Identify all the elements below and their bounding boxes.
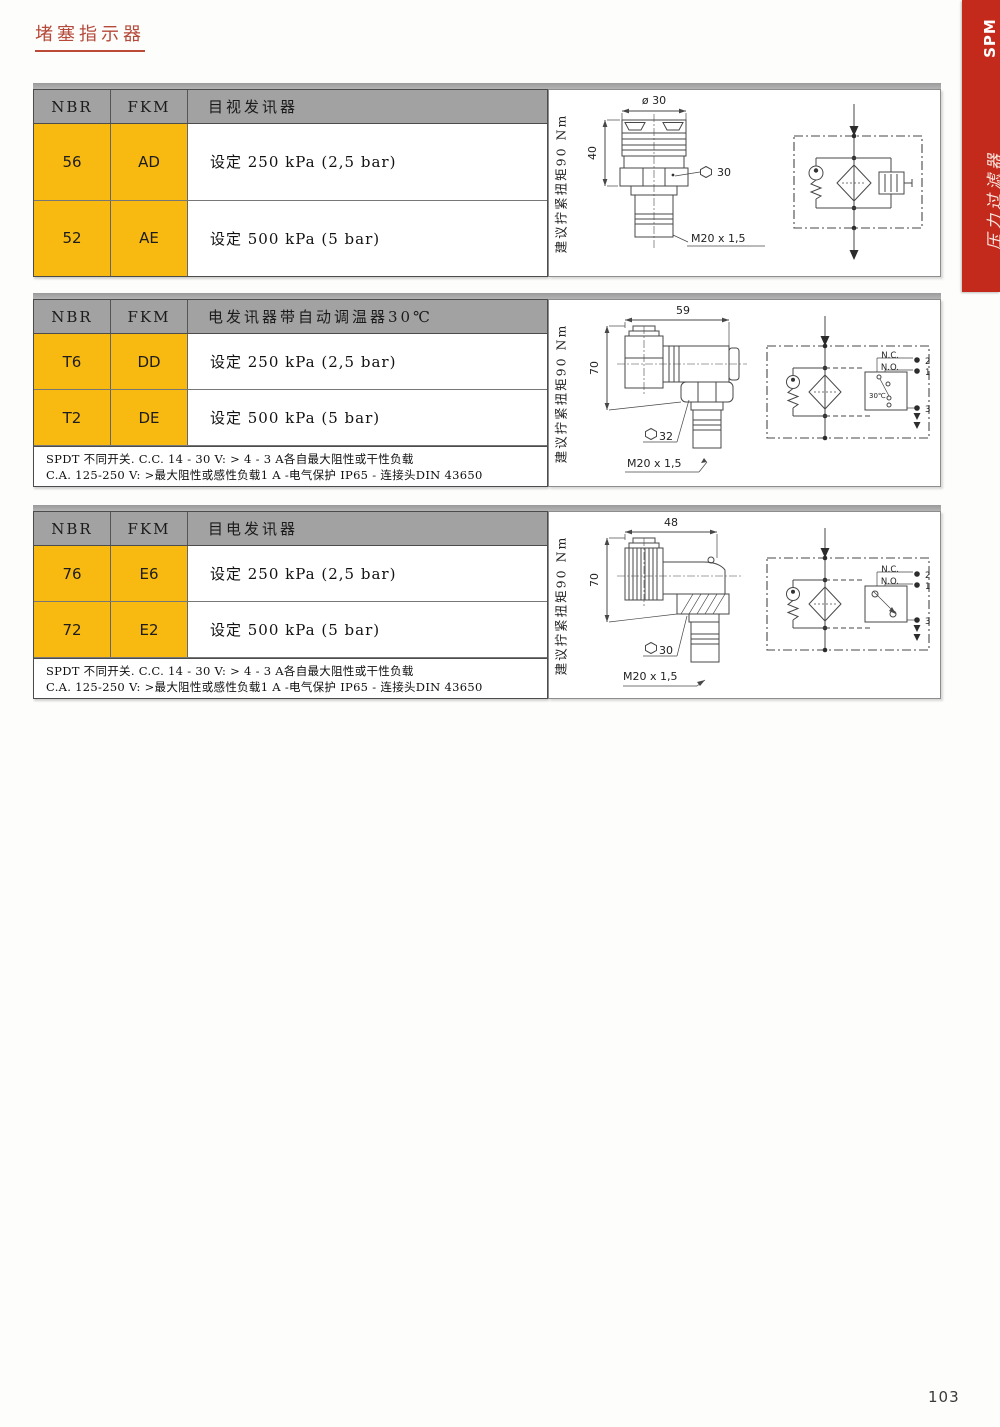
device-outline-drawing	[605, 318, 747, 472]
nc-label: N.C.	[881, 565, 899, 575]
thread-label: M20 x 1,5	[623, 670, 677, 683]
cell-fkm-value: E6	[111, 546, 188, 601]
section-visual-electrical-indicator: NBR FKM 目电发讯器 76 E6 设定 250 kPa (2,5 bar)…	[33, 505, 941, 699]
table-row: T2 DE 设定 500 kPa (5 bar)	[34, 390, 547, 446]
table-row: 72 E2 设定 500 kPa (5 bar)	[34, 602, 547, 658]
cell-fkm-value: DE	[111, 390, 188, 445]
hydraulic-schematic	[767, 316, 929, 440]
cell-setting-desc: 设定 250 kPa (2,5 bar)	[188, 124, 547, 200]
header-cell-fkm: FKM	[111, 90, 188, 123]
footnote-line-2: C.A. 125-250 V: >最大阻性或感性负载1 A -电气保护 IP65…	[46, 467, 537, 483]
cell-nbr-value: T2	[34, 390, 111, 445]
table-row: 56 AD 设定 250 kPa (2,5 bar)	[34, 124, 547, 201]
hexagon-icon	[646, 429, 657, 440]
terminal-2-label: 2	[925, 571, 930, 581]
check-valve-icon	[809, 166, 823, 180]
no-label: N.O.	[881, 577, 899, 587]
device-outline-drawing	[603, 109, 765, 250]
check-valve-icon	[787, 376, 800, 389]
table-header-row: NBR FKM 目电发讯器	[34, 512, 547, 546]
electrical-indicator-drawing: 59 70 32 M20 x 1,5	[569, 300, 940, 486]
header-cell-title: 电发讯器带自动调温器30℃	[188, 300, 547, 333]
dim-diameter-label: ø 30	[642, 94, 666, 107]
header-cell-title: 目视发讯器	[188, 90, 547, 123]
terminal-2-label: 2	[925, 357, 930, 367]
cell-fkm-value: AD	[111, 124, 188, 200]
dim-height-label: 70	[588, 361, 601, 375]
header-cell-nbr: NBR	[34, 90, 111, 123]
drawing-panel: 建议拧紧扭矩90 Nm	[548, 511, 941, 699]
cell-nbr-value: 56	[34, 124, 111, 200]
page-title: 堵塞指示器	[35, 20, 145, 52]
torque-note: 建议拧紧扭矩90 Nm	[551, 323, 570, 463]
cell-setting-desc: 设定 250 kPa (2,5 bar)	[188, 546, 547, 601]
table-header-row: NBR FKM 电发讯器带自动调温器30℃	[34, 300, 547, 334]
terminal-1-label: 1	[925, 368, 930, 378]
hexagon-icon	[646, 643, 657, 654]
header-cell-nbr: NBR	[34, 512, 111, 545]
table-row: T6 DD 设定 250 kPa (2,5 bar)	[34, 334, 547, 390]
cell-setting-desc: 设定 250 kPa (2,5 bar)	[188, 334, 547, 389]
torque-note: 建议拧紧扭矩90 Nm	[551, 535, 570, 675]
header-cell-nbr: NBR	[34, 300, 111, 333]
nc-label: N.C.	[881, 351, 899, 361]
cell-setting-desc: 设定 500 kPa (5 bar)	[188, 201, 547, 277]
hydraulic-schematic	[794, 104, 922, 260]
cell-nbr-value: 52	[34, 201, 111, 277]
thermostat-label: 30℃	[869, 392, 886, 400]
header-cell-title: 目电发讯器	[188, 512, 547, 545]
table-footnote: SPDT 不同开关. C.C. 14 - 30 V: > 4 - 3 A各自最大…	[34, 446, 547, 486]
no-label: N.O.	[881, 363, 899, 373]
thread-label: M20 x 1,5	[691, 232, 745, 245]
cell-nbr-value: 72	[34, 602, 111, 657]
check-valve-icon	[787, 588, 800, 601]
table-row: 76 E6 设定 250 kPa (2,5 bar)	[34, 546, 547, 602]
cell-setting-desc: 设定 500 kPa (5 bar)	[188, 390, 547, 445]
table-header-row: NBR FKM 目视发讯器	[34, 90, 547, 124]
footnote-line-2: C.A. 125-250 V: >最大阻性或感性负载1 A -电气保护 IP65…	[46, 679, 537, 695]
cell-fkm-value: E2	[111, 602, 188, 657]
visual-indicator-drawing: ø 30 40 30 M20 x 1,5	[569, 90, 940, 276]
footnote-line-1: SPDT 不同开关. C.C. 14 - 30 V: > 4 - 3 A各自最大…	[46, 451, 537, 467]
terminal-3-label: 3	[925, 405, 930, 415]
hexagon-icon	[701, 167, 712, 178]
dim-height-label: 70	[588, 573, 601, 587]
drawing-panel: 建议拧紧扭矩90 Nm	[548, 89, 941, 277]
section-electrical-indicator: NBR FKM 电发讯器带自动调温器30℃ T6 DD 设定 250 kPa (…	[33, 293, 941, 487]
footnote-line-1: SPDT 不同开关. C.C. 14 - 30 V: > 4 - 3 A各自最大…	[46, 663, 537, 679]
page-number: 103	[928, 1388, 960, 1406]
drawing-panel: 建议拧紧扭矩90 Nm	[548, 299, 941, 487]
dim-width-label: 48	[664, 516, 678, 529]
hex-size-label: 30	[717, 166, 731, 179]
terminal-1-label: 1	[925, 582, 930, 592]
cell-fkm-value: DD	[111, 334, 188, 389]
visual-indicator-table: NBR FKM 目视发讯器 56 AD 设定 250 kPa (2,5 bar)…	[33, 89, 548, 277]
hydraulic-schematic	[767, 528, 929, 652]
thread-label: M20 x 1,5	[627, 457, 681, 470]
dim-width-label: 59	[676, 304, 690, 317]
terminal-3-label: 3	[925, 617, 930, 627]
header-cell-fkm: FKM	[111, 300, 188, 333]
visual-electrical-indicator-drawing: 48 70 30 M20 x 1,5	[569, 512, 940, 698]
cell-setting-desc: 设定 500 kPa (5 bar)	[188, 602, 547, 657]
electrical-indicator-table: NBR FKM 电发讯器带自动调温器30℃ T6 DD 设定 250 kPa (…	[33, 299, 548, 487]
cell-fkm-value: AE	[111, 201, 188, 277]
hex-size-label: 32	[659, 430, 673, 443]
device-outline-drawing	[605, 530, 743, 686]
section-visual-indicator: NBR FKM 目视发讯器 56 AD 设定 250 kPa (2,5 bar)…	[33, 83, 941, 277]
header-cell-fkm: FKM	[111, 512, 188, 545]
cell-nbr-value: 76	[34, 546, 111, 601]
dim-height-label: 40	[586, 146, 599, 160]
table-row: 52 AE 设定 500 kPa (5 bar)	[34, 201, 547, 277]
visual-electrical-indicator-table: NBR FKM 目电发讯器 76 E6 设定 250 kPa (2,5 bar)…	[33, 511, 548, 699]
torque-note: 建议拧紧扭矩90 Nm	[551, 113, 570, 253]
side-tab: SPM 压力过滤器	[962, 0, 1000, 292]
hex-size-label: 30	[659, 644, 673, 657]
cell-nbr-value: T6	[34, 334, 111, 389]
table-footnote: SPDT 不同开关. C.C. 14 - 30 V: > 4 - 3 A各自最大…	[34, 658, 547, 698]
